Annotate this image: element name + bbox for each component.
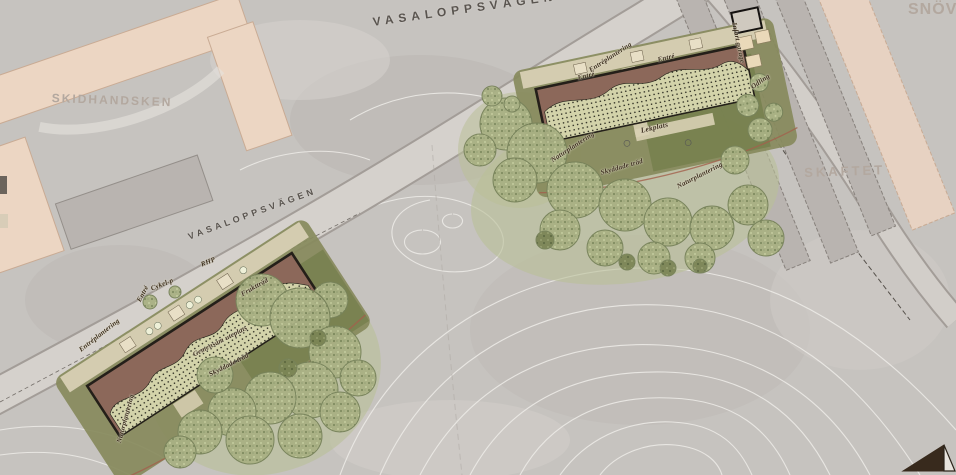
- site-plan-canvas: [0, 0, 956, 475]
- garage-entry-box: [731, 7, 762, 33]
- site-plan-map: VASALOPPSVÄGENVASALOPPSVÄGENSNÖVSKIDHAND…: [0, 0, 956, 475]
